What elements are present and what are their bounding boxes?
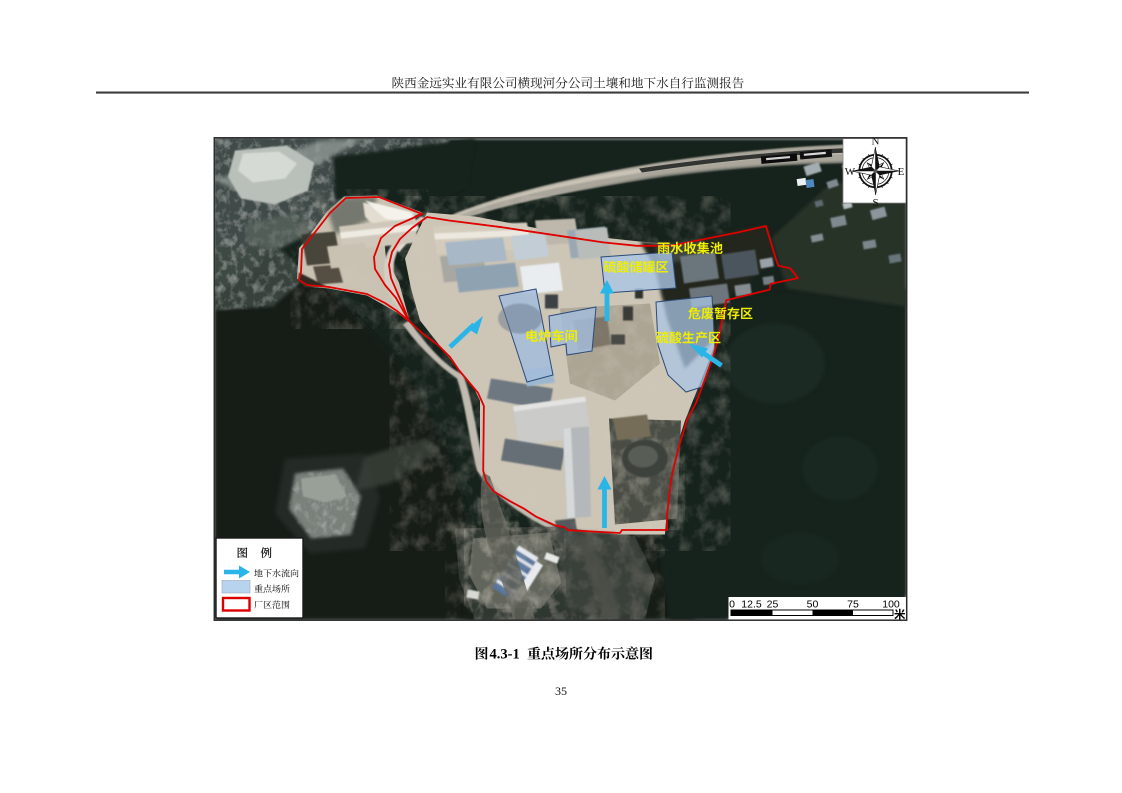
- svg-text:100: 100: [882, 599, 900, 611]
- svg-text:W: W: [845, 166, 856, 178]
- svg-text:35: 35: [555, 684, 567, 698]
- svg-text:25: 25: [767, 599, 779, 611]
- svg-text:S: S: [872, 197, 878, 209]
- svg-text:0: 0: [729, 599, 735, 611]
- svg-text:4.3-1: 4.3-1: [490, 647, 520, 663]
- svg-text:E: E: [898, 166, 905, 178]
- svg-text:50: 50: [807, 599, 819, 611]
- svg-text:75: 75: [847, 599, 859, 611]
- svg-text:12.5: 12.5: [741, 599, 762, 611]
